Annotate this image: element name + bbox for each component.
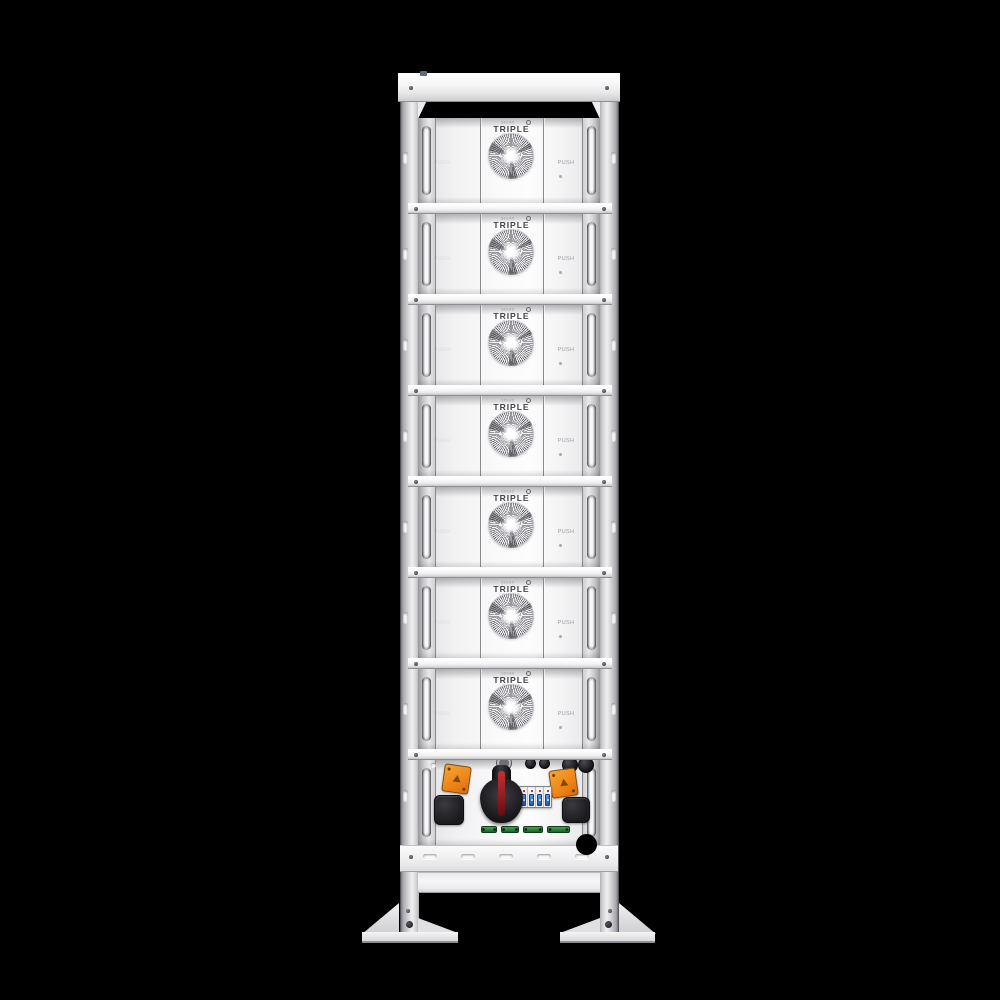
post-vent-slot	[403, 339, 408, 351]
shelf-rail	[408, 749, 612, 760]
battery-module-face: SOLAX TRIPLE POWER PUSH PUSH	[418, 669, 600, 749]
terminal-row	[481, 826, 570, 833]
breaker-pole	[528, 787, 536, 807]
screw-icon	[414, 298, 418, 302]
post-vent-slot	[403, 790, 408, 802]
breaker-indicator-window	[545, 789, 550, 793]
screw-icon	[602, 298, 606, 302]
fan-grille-icon	[488, 502, 534, 548]
cable-port-left	[434, 795, 464, 825]
top-gap-opening	[418, 100, 600, 119]
push-label-left: PUSH	[430, 619, 454, 625]
fan-grille-icon	[488, 684, 534, 730]
left-handle	[422, 222, 431, 286]
logo-main-text: TRIPLE	[482, 494, 542, 502]
control-unit	[418, 760, 600, 845]
push-label-left: PUSH	[430, 159, 454, 165]
left-handle	[422, 404, 431, 468]
left-handle-column	[418, 396, 436, 476]
status-led	[559, 453, 562, 456]
post-vent-slot	[403, 152, 408, 164]
base-vent-slot	[499, 854, 513, 859]
base-vent-row	[423, 854, 589, 859]
screw-icon	[605, 855, 609, 859]
post-vent-slot	[611, 339, 616, 351]
warning-connector-left	[441, 763, 472, 794]
base-cross-rail	[418, 872, 600, 893]
cable-port-right	[562, 797, 590, 823]
shelf-rail	[408, 385, 612, 396]
panel-seam	[543, 669, 544, 749]
screw-icon	[409, 86, 413, 90]
status-led	[559, 544, 562, 547]
screw-icon	[605, 86, 609, 90]
right-handle	[587, 677, 596, 741]
shelf-rail	[408, 658, 612, 669]
status-led	[559, 271, 562, 274]
foot-gusset-right	[619, 903, 656, 934]
push-label-left: PUSH	[430, 437, 454, 443]
screw-icon	[602, 571, 606, 575]
panel-seam	[543, 214, 544, 294]
screw-icon	[414, 207, 418, 211]
left-handle	[422, 768, 431, 837]
post-vent-slot	[611, 612, 616, 624]
post-vent-slot	[403, 521, 408, 533]
screw-icon	[414, 571, 418, 575]
screw-icon	[409, 855, 413, 859]
screw-icon	[608, 909, 612, 913]
status-led	[559, 726, 562, 729]
base-vent-slot	[423, 854, 437, 859]
push-label: PUSH	[554, 619, 578, 625]
breaker-toggle	[545, 794, 550, 806]
status-led	[559, 635, 562, 638]
left-handle	[422, 677, 431, 741]
logo-main-text: TRIPLE	[482, 403, 542, 411]
right-handle	[587, 313, 596, 377]
green-terminal-connector	[501, 826, 519, 833]
right-handle	[587, 586, 596, 650]
base-vent-slot	[537, 854, 551, 859]
logo-main-text: TRIPLE	[482, 125, 542, 133]
status-led	[559, 362, 562, 365]
module-stack: SOLAX TRIPLE POWER PUSH PUSH	[418, 118, 600, 845]
screw-icon	[602, 753, 606, 757]
cable-notch	[576, 834, 597, 855]
battery-module-face: SOLAX TRIPLE POWER PUSH PUSH	[418, 396, 600, 476]
screw-icon	[414, 389, 418, 393]
top-beam	[398, 73, 620, 102]
green-terminal-connector	[523, 826, 543, 833]
right-handle	[587, 495, 596, 559]
left-handle-column	[418, 578, 436, 658]
logo-main-text: TRIPLE	[482, 312, 542, 320]
fan-grille-icon	[488, 229, 534, 275]
dc-switch-knob	[480, 765, 523, 823]
battery-module-face: SOLAX TRIPLE POWER PUSH PUSH	[418, 214, 600, 294]
post-vent-slot	[403, 430, 408, 442]
foot-plate-right	[560, 932, 655, 943]
left-handle	[422, 586, 431, 650]
right-handle-column	[582, 214, 600, 294]
panel-seam	[543, 487, 544, 567]
push-label: PUSH	[554, 710, 578, 716]
fan-grille-icon	[488, 133, 534, 179]
foot-bolt-icon	[406, 921, 413, 928]
push-label: PUSH	[554, 159, 578, 165]
mount-hole	[431, 763, 436, 768]
foot-gusset-left	[362, 903, 399, 934]
right-handle-column	[582, 669, 600, 749]
fan-grille-icon	[488, 411, 534, 457]
left-handle-column	[418, 214, 436, 294]
right-handle	[587, 404, 596, 468]
right-handle-column	[582, 118, 600, 203]
right-handle-column	[582, 396, 600, 476]
post-vent-slot	[611, 703, 616, 715]
panel-seam	[543, 578, 544, 658]
status-led	[559, 175, 562, 178]
shelf-rail	[408, 294, 612, 305]
shelf-rail	[408, 476, 612, 487]
fan-grille-icon	[488, 593, 534, 639]
battery-module-face: SOLAX TRIPLE POWER PUSH PUSH	[418, 305, 600, 385]
post-vent-slot	[611, 430, 616, 442]
beam-clip	[420, 71, 427, 76]
right-handle-column	[582, 578, 600, 658]
battery-module-face: SOLAX TRIPLE POWER PUSH PUSH	[418, 487, 600, 567]
logo-main-text: TRIPLE	[482, 585, 542, 593]
battery-module: SOLAX TRIPLE POWER PUSH PUSH	[418, 214, 600, 305]
push-label-left: PUSH	[430, 710, 454, 716]
fan-grille-icon	[488, 320, 534, 366]
post-vent-slot	[611, 248, 616, 260]
battery-module-face: SOLAX TRIPLE POWER PUSH PUSH	[418, 578, 600, 658]
screw-icon	[602, 662, 606, 666]
breaker-toggle	[537, 794, 542, 806]
left-handle	[422, 313, 431, 377]
scene-background: SOLAX TRIPLE POWER PUSH PUSH	[0, 0, 1000, 1000]
battery-module: SOLAX TRIPLE POWER PUSH PUSH	[418, 578, 600, 669]
breaker-pole	[536, 787, 544, 807]
panel-seam	[543, 118, 544, 203]
screw-icon	[602, 389, 606, 393]
battery-module: SOLAX TRIPLE POWER PUSH PUSH	[418, 396, 600, 487]
right-handle	[587, 126, 596, 195]
breaker-toggle	[529, 794, 534, 806]
post-vent-slot	[611, 152, 616, 164]
left-handle-column	[418, 487, 436, 567]
post-vent-slot	[611, 790, 616, 802]
right-handle	[587, 222, 596, 286]
base-vent-slot	[461, 854, 475, 859]
post-vent-slot	[403, 703, 408, 715]
shelf-rail	[408, 567, 612, 578]
screw-icon	[414, 662, 418, 666]
screw-icon	[406, 909, 410, 913]
foot-inner-wedge-left	[418, 918, 458, 933]
push-label: PUSH	[554, 437, 578, 443]
breaker-pole	[544, 787, 551, 807]
left-handle-column	[418, 669, 436, 749]
green-terminal-connector	[547, 826, 570, 833]
panel-seam	[543, 305, 544, 385]
push-label-left: PUSH	[430, 255, 454, 261]
foot-bolt-icon	[605, 921, 612, 928]
logo-main-text: TRIPLE	[482, 221, 542, 229]
post-vent-slot	[403, 612, 408, 624]
green-terminal-connector	[481, 826, 497, 833]
circuit-breaker	[519, 786, 552, 808]
shelf-rail	[408, 203, 612, 214]
post-vent-slot	[403, 248, 408, 260]
foot-inner-wedge-right	[560, 918, 600, 933]
panel-seam	[543, 396, 544, 476]
battery-module: SOLAX TRIPLE POWER PUSH PUSH	[418, 305, 600, 396]
push-label: PUSH	[554, 528, 578, 534]
battery-module: SOLAX TRIPLE POWER PUSH PUSH	[418, 118, 600, 214]
screw-icon	[414, 480, 418, 484]
right-handle-column	[582, 305, 600, 385]
battery-module-face: SOLAX TRIPLE POWER PUSH PUSH	[418, 118, 600, 203]
foot-plate-left	[362, 932, 458, 943]
right-handle-column	[582, 487, 600, 567]
logo-main-text: TRIPLE	[482, 676, 542, 684]
left-handle-column	[418, 305, 436, 385]
battery-module: SOLAX TRIPLE POWER PUSH PUSH	[418, 669, 600, 760]
post-vent-slot	[611, 521, 616, 533]
battery-rack: SOLAX TRIPLE POWER PUSH PUSH	[398, 71, 620, 946]
warning-connector-right	[548, 767, 579, 798]
push-label: PUSH	[554, 255, 578, 261]
push-label: PUSH	[554, 346, 578, 352]
push-label-left: PUSH	[430, 528, 454, 534]
switch-red-stripe	[498, 771, 505, 816]
screw-icon	[414, 753, 418, 757]
left-handle	[422, 495, 431, 559]
screw-icon	[602, 207, 606, 211]
push-label-left: PUSH	[430, 346, 454, 352]
battery-module: SOLAX TRIPLE POWER PUSH PUSH	[418, 487, 600, 578]
breaker-indicator-window	[529, 789, 534, 793]
screw-icon	[602, 480, 606, 484]
breaker-indicator-window	[537, 789, 542, 793]
